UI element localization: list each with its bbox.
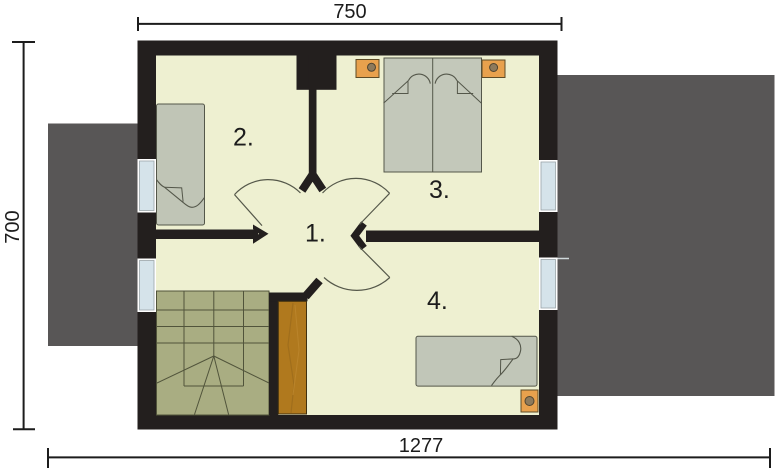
svg-text:1.: 1. [305,220,326,248]
svg-text:2.: 2. [233,124,254,152]
svg-text:4.: 4. [427,287,448,315]
svg-text:3.: 3. [429,176,450,204]
svg-text:1277: 1277 [399,435,444,457]
svg-text:700: 700 [2,210,24,243]
svg-text:750: 750 [333,1,366,23]
